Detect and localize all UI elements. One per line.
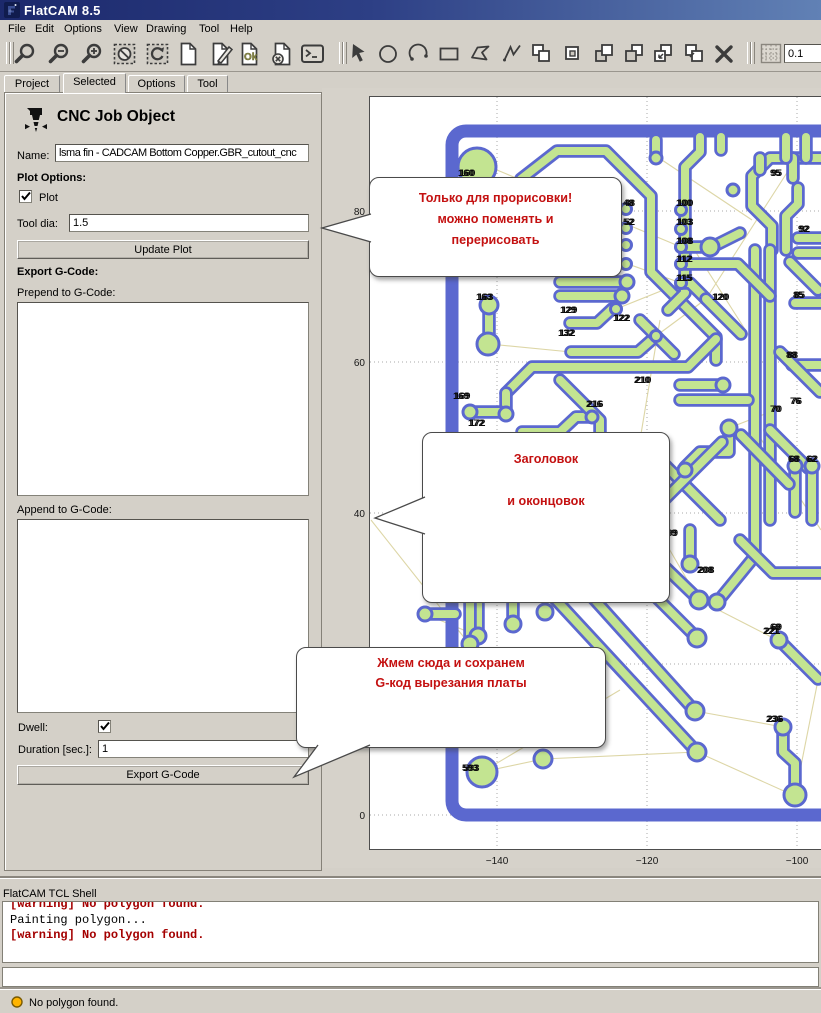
svg-text:−120: −120 [636, 856, 659, 867]
svg-text:70: 70 [772, 404, 783, 415]
svg-text:100: 100 [678, 198, 694, 209]
svg-text:Ok: Ok [244, 52, 258, 63]
svg-text:169: 169 [455, 391, 471, 402]
svg-text:593: 593 [464, 763, 480, 774]
svg-text:115: 115 [678, 273, 694, 284]
svg-text:132: 132 [560, 328, 576, 339]
svg-text:216: 216 [588, 399, 604, 410]
svg-text:112: 112 [678, 254, 693, 265]
svg-text:69: 69 [772, 622, 783, 633]
svg-text:92: 92 [800, 224, 811, 235]
svg-text:68: 68 [790, 454, 801, 465]
svg-text:60: 60 [354, 358, 366, 369]
svg-text:163: 163 [478, 292, 494, 303]
svg-text:122: 122 [615, 313, 631, 324]
svg-text:210: 210 [636, 375, 652, 386]
svg-text:208: 208 [699, 565, 715, 576]
svg-text:40: 40 [354, 509, 366, 520]
svg-text:−140: −140 [486, 856, 509, 867]
svg-text:85: 85 [795, 290, 806, 301]
svg-text:0: 0 [359, 811, 365, 822]
svg-text:103: 103 [678, 217, 694, 228]
svg-text:62: 62 [808, 454, 819, 465]
svg-text:−100: −100 [786, 856, 809, 867]
svg-text:95: 95 [772, 168, 783, 179]
svg-text:172: 172 [470, 418, 486, 429]
svg-text:236: 236 [768, 714, 784, 725]
svg-text:120: 120 [714, 292, 730, 303]
svg-text:52: 52 [625, 217, 636, 228]
svg-text:129: 129 [562, 305, 578, 316]
svg-text:48: 48 [625, 198, 636, 209]
svg-text:76: 76 [792, 396, 803, 407]
svg-text:108: 108 [678, 236, 694, 247]
svg-text:88: 88 [788, 350, 799, 361]
